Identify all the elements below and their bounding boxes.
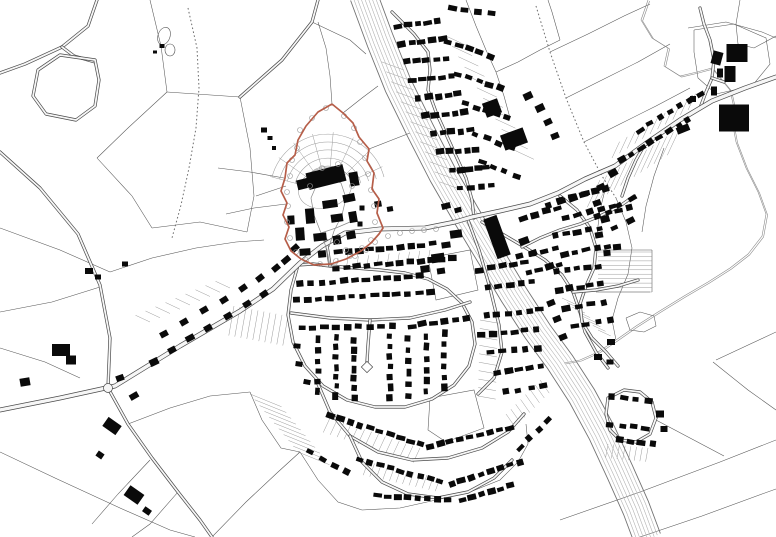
building-footprint <box>329 280 336 285</box>
building-footprint <box>594 244 601 251</box>
building-footprint <box>458 128 464 135</box>
building-footprint <box>333 249 342 255</box>
field-boundary-line <box>0 287 100 312</box>
plot-boundary-tick <box>386 439 393 454</box>
building-footprint <box>453 72 462 78</box>
building-footprint <box>539 382 548 389</box>
building-footprint <box>385 261 394 267</box>
building-footprint <box>597 280 604 286</box>
building-footprint <box>521 327 529 332</box>
plot-boundary-tick <box>229 306 234 336</box>
building-footprint <box>498 348 506 353</box>
building-footprint <box>407 243 415 250</box>
building-footprint <box>719 105 749 132</box>
building-footprint <box>363 263 370 269</box>
building-footprint <box>448 5 458 12</box>
plot-boundary-tick <box>634 447 636 461</box>
building-footprint <box>656 411 664 418</box>
building-footprint <box>366 324 373 330</box>
plot-boundary-tick <box>606 444 608 458</box>
building-footprint <box>415 495 421 501</box>
building-footprint <box>464 147 471 154</box>
building-footprint <box>424 93 433 101</box>
building-footprint <box>296 178 310 191</box>
field-boundary-line <box>0 228 110 272</box>
plot-boundary-tick <box>205 285 220 292</box>
building-footprint <box>534 267 543 273</box>
building-footprint <box>404 274 413 279</box>
building-footprint <box>436 439 446 447</box>
building-footprint <box>456 476 466 484</box>
plot-boundary-tick <box>274 423 306 436</box>
building-footprint <box>448 255 457 261</box>
building-footprint <box>374 261 383 266</box>
building-footprint <box>467 473 476 482</box>
plot-boundary-tick <box>260 406 292 419</box>
building-footprint <box>412 58 421 64</box>
building-footprint <box>160 44 165 48</box>
plot-boundary-tick <box>288 440 320 453</box>
building-footprint <box>272 146 276 150</box>
building-footprint <box>373 493 382 498</box>
plot-boundary-tick <box>478 396 496 399</box>
building-footprint <box>558 333 568 342</box>
building-footprint <box>486 53 495 61</box>
building-footprint <box>441 363 447 369</box>
building-footprint <box>444 497 451 502</box>
building-footprint <box>358 222 363 227</box>
building-footprint <box>332 392 338 400</box>
field-boundary-line <box>212 452 300 537</box>
building-footprint <box>466 434 474 439</box>
building-footprint <box>333 344 338 351</box>
building-footprint <box>630 423 638 429</box>
building-footprint <box>417 243 425 248</box>
building-footprint <box>514 367 523 373</box>
building-footprint <box>387 465 395 471</box>
building-footprint <box>427 76 436 81</box>
building-footprint <box>255 273 265 283</box>
building-footprint <box>397 40 407 48</box>
building-footprint <box>450 229 463 239</box>
building-footprint <box>440 317 449 325</box>
building-footprint <box>465 44 475 52</box>
building-footprint <box>530 211 540 219</box>
building-footprint <box>424 388 428 394</box>
building-footprint <box>538 363 544 369</box>
building-footprint <box>438 75 446 81</box>
building-footprint <box>478 184 485 190</box>
building-footprint <box>644 397 653 404</box>
building-footprint <box>396 434 406 441</box>
building-footprint <box>460 7 468 13</box>
field-boundary-line <box>343 86 378 113</box>
building-footprint <box>424 356 430 362</box>
building-footprint <box>19 377 30 387</box>
building-footprint <box>552 315 562 324</box>
building-footprint <box>153 51 157 54</box>
building-footprint <box>509 261 518 267</box>
building-footprint <box>404 335 410 341</box>
building-footprint <box>522 91 533 101</box>
building-footprint <box>514 388 521 394</box>
plot-boundary-tick <box>279 429 311 442</box>
building-footprint <box>375 246 384 252</box>
building-footprint <box>421 57 429 63</box>
building-footprint <box>316 335 321 343</box>
building-footprint <box>351 355 356 362</box>
plot-boundary-tick <box>250 394 282 407</box>
building-footprint <box>441 202 451 210</box>
building-footprint <box>331 213 344 223</box>
building-footprint <box>487 10 495 16</box>
tree-symbol <box>285 190 290 195</box>
building-footprint <box>433 57 440 62</box>
building-footprint <box>552 245 559 251</box>
building-footprint <box>434 17 441 24</box>
field-boundary-line <box>97 158 152 228</box>
building-footprint <box>604 244 612 250</box>
building-footprint <box>405 393 412 399</box>
building-footprint <box>485 284 491 290</box>
building-footprint <box>384 495 392 499</box>
building-footprint <box>299 326 306 331</box>
building-footprint <box>375 429 383 435</box>
building-footprint <box>142 506 152 516</box>
plot-boundary-tick <box>323 418 330 433</box>
building-footprint <box>667 108 674 115</box>
building-footprint <box>458 497 466 503</box>
building-footprint <box>616 436 624 443</box>
field-boundary-line <box>97 92 167 158</box>
building-footprint <box>487 487 497 495</box>
road-surface <box>240 0 318 97</box>
building-footprint <box>525 434 533 443</box>
building-footprint <box>636 127 646 135</box>
plot-boundary-tick <box>265 313 270 343</box>
building-footprint <box>446 128 455 135</box>
building-footprint <box>424 334 428 340</box>
building-footprint <box>334 334 339 341</box>
building-footprint <box>403 58 411 65</box>
plot-boundary-tick <box>458 57 478 66</box>
plot-boundary-tick <box>269 417 301 430</box>
building-footprint <box>416 440 424 447</box>
building-footprint <box>610 224 618 231</box>
plot-boundary-tick <box>259 312 264 342</box>
plot-boundary-tick <box>620 137 628 153</box>
roundabout-island <box>361 361 372 372</box>
building-footprint <box>506 282 515 288</box>
building-footprint <box>404 22 413 28</box>
building-footprint <box>386 394 393 401</box>
plot-boundary-tick <box>277 315 282 345</box>
tree-symbol <box>288 236 293 241</box>
building-footprint <box>482 165 490 170</box>
field-boundary-line <box>713 362 776 410</box>
building-footprint <box>406 347 411 353</box>
building-footprint <box>319 280 325 286</box>
building-footprint <box>404 291 411 297</box>
building-footprint <box>271 263 281 273</box>
building-footprint <box>533 326 539 332</box>
building-footprint <box>474 165 482 171</box>
building-footprint <box>408 78 417 83</box>
field-boundary-line <box>642 148 664 232</box>
building-footprint <box>441 241 451 248</box>
plot-boundary-tick <box>247 309 252 339</box>
building-footprint <box>418 77 427 82</box>
building-footprint <box>352 366 357 374</box>
building-footprint <box>417 320 427 328</box>
building-footprint <box>607 316 614 323</box>
building-footprint <box>486 467 496 475</box>
building-footprint <box>415 272 424 279</box>
plot-boundary-tick <box>530 390 539 403</box>
building-footprint <box>342 467 351 476</box>
plot-boundary-tick <box>525 395 534 408</box>
building-footprint <box>348 211 358 223</box>
building-footprint <box>657 113 665 121</box>
building-footprint <box>445 148 453 154</box>
building-footprint <box>261 128 267 133</box>
building-footprint <box>661 426 668 432</box>
plot-boundary-tick <box>253 310 258 340</box>
building-footprint <box>497 486 505 492</box>
building-footprint <box>553 205 562 211</box>
building-footprint <box>455 149 462 154</box>
building-footprint <box>306 164 347 190</box>
building-footprint <box>535 307 544 312</box>
building-footprint <box>420 265 430 273</box>
building-footprint <box>442 329 448 337</box>
building-footprint <box>356 422 364 430</box>
building-footprint <box>313 232 327 241</box>
building-footprint <box>407 369 412 377</box>
building-footprint <box>383 275 391 280</box>
building-footprint <box>421 111 431 119</box>
building-footprint <box>424 377 430 384</box>
building-footprint <box>448 73 454 79</box>
building-footprint <box>445 438 454 445</box>
plot-boundary-tick <box>640 447 642 461</box>
building-footprint <box>425 443 434 450</box>
building-footprint <box>404 494 412 500</box>
building-footprint <box>122 262 128 267</box>
building-footprint <box>449 168 456 173</box>
plot-boundary-tick <box>175 298 190 305</box>
building-footprint <box>550 132 560 141</box>
building-footprint <box>441 383 448 391</box>
field-boundary-line <box>496 40 560 72</box>
building-footprint <box>335 383 340 388</box>
building-footprint <box>394 494 402 500</box>
building-footprint <box>376 462 385 468</box>
building-footprint <box>472 105 481 112</box>
field-boundary-line <box>0 452 195 537</box>
building-footprint <box>307 280 313 286</box>
building-footprint <box>299 248 310 256</box>
plot-boundary-tick <box>271 314 276 344</box>
building-footprint <box>576 285 585 290</box>
building-footprint <box>585 226 592 232</box>
building-footprint <box>522 346 529 353</box>
building-footprint <box>564 267 570 273</box>
roads-layer <box>0 0 776 537</box>
field-boundary-line <box>584 88 690 142</box>
building-footprint <box>505 311 512 316</box>
building-footprint <box>474 9 482 16</box>
building-footprint <box>388 364 393 369</box>
building-footprint <box>340 277 349 284</box>
building-footprint <box>350 337 356 344</box>
field-boundary-line <box>92 460 150 524</box>
building-footprint <box>518 215 528 223</box>
building-footprint <box>626 439 634 445</box>
building-footprint <box>395 468 404 475</box>
plot-boundary-tick <box>330 420 337 435</box>
building-footprint <box>442 375 447 380</box>
plot-boundary-tick <box>155 307 170 314</box>
building-footprint <box>717 69 723 78</box>
building-footprint <box>619 423 626 428</box>
field-boundary-line <box>626 312 656 332</box>
building-footprint <box>406 438 416 445</box>
building-footprint <box>641 426 650 432</box>
building-footprint <box>525 269 532 275</box>
building-footprint <box>459 108 468 116</box>
field-boundary-line <box>736 0 740 44</box>
building-footprint <box>388 344 393 349</box>
building-footprint <box>562 231 570 236</box>
building-footprint <box>343 265 350 270</box>
building-footprint <box>330 462 339 470</box>
building-footprint <box>355 323 362 328</box>
building-footprint <box>504 367 514 375</box>
landscape-spoke <box>345 150 370 175</box>
building-footprint <box>645 120 653 127</box>
building-footprint <box>552 232 559 239</box>
building-footprint <box>443 39 451 45</box>
road-casing <box>240 0 318 97</box>
building-footprint <box>351 277 359 283</box>
plot-boundary-tick <box>255 400 287 413</box>
building-footprint <box>625 204 633 212</box>
building-footprint <box>487 264 496 271</box>
road-surface <box>0 77 776 410</box>
building-footprint <box>350 375 356 382</box>
field-boundaries-layer <box>0 0 776 537</box>
building-footprint <box>303 379 311 385</box>
building-footprint <box>52 344 70 356</box>
plot-boundary-tick <box>477 88 497 97</box>
building-footprint <box>456 436 464 442</box>
building-footprint <box>457 186 463 190</box>
building-footprint <box>219 295 229 304</box>
building-footprint <box>496 427 503 432</box>
building-footprint <box>102 417 121 435</box>
building-footprint <box>541 206 551 214</box>
building-footprint <box>448 480 456 488</box>
building-footprint <box>159 329 169 338</box>
building-footprint <box>393 24 402 30</box>
building-footprint <box>592 199 602 207</box>
field-boundary-line <box>566 44 670 98</box>
plot-boundary-tick <box>479 345 497 348</box>
building-footprint <box>427 36 436 43</box>
building-footprint <box>573 265 580 270</box>
building-footprint <box>382 292 389 297</box>
building-footprint <box>333 374 338 380</box>
building-footprint <box>95 275 101 280</box>
building-footprint <box>516 444 525 453</box>
building-footprint <box>386 246 393 251</box>
building-footprint <box>608 393 615 400</box>
building-footprint <box>268 136 273 140</box>
building-footprint <box>501 330 508 335</box>
building-footprint <box>453 90 462 97</box>
building-footprint <box>511 346 517 353</box>
building-footprint <box>486 350 494 355</box>
building-footprint <box>445 92 453 98</box>
plot-boundary-tick <box>479 362 497 365</box>
building-footprint <box>493 311 501 317</box>
field-boundary-line <box>128 392 250 424</box>
building-footprint <box>467 493 477 501</box>
building-footprint <box>484 81 494 89</box>
building-footprint <box>526 308 533 314</box>
building-footprint <box>461 100 469 106</box>
plot-boundary-tick <box>185 294 200 301</box>
building-footprint <box>318 455 327 463</box>
building-footprint <box>325 296 334 302</box>
plot-boundary-tick <box>627 132 635 148</box>
plot-boundary-tick <box>145 311 160 318</box>
plot-boundary-tick <box>521 399 530 412</box>
plot-boundary-tick <box>392 441 399 456</box>
field-boundary-line <box>716 332 776 360</box>
building-footprint <box>534 103 545 113</box>
building-footprint <box>293 343 300 349</box>
building-footprint <box>405 381 412 387</box>
building-footprint <box>581 190 591 197</box>
field-boundary-line <box>640 489 776 537</box>
building-footprint <box>540 248 549 254</box>
building-footprint <box>396 244 405 251</box>
building-footprint <box>395 260 403 267</box>
building-footprint <box>486 429 494 436</box>
building-footprint <box>471 131 478 137</box>
railway-corridor-line <box>375 0 660 533</box>
building-footprint <box>342 193 355 203</box>
building-footprint <box>586 301 595 306</box>
building-footprint <box>66 356 76 365</box>
building-footprint <box>373 275 381 281</box>
field-boundary-line <box>240 97 254 232</box>
building-footprint <box>476 78 483 84</box>
landscape-spoke <box>312 134 321 169</box>
building-footprint <box>430 130 437 137</box>
tree-symbol <box>398 231 403 236</box>
building-footprint <box>415 290 423 295</box>
building-footprint <box>386 353 392 360</box>
building-footprint <box>314 379 321 385</box>
building-footprint <box>332 266 339 271</box>
building-footprint <box>426 289 435 296</box>
building-footprint <box>606 422 614 428</box>
field-boundary-line <box>226 204 286 214</box>
building-footprint <box>676 102 684 110</box>
